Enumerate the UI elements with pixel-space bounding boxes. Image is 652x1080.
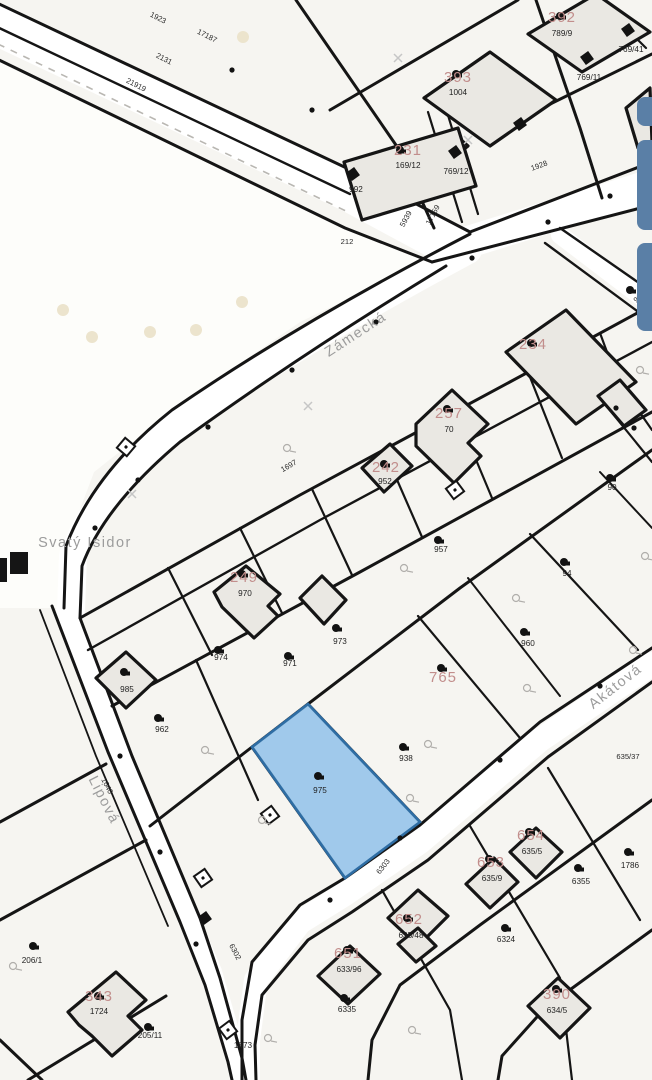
parcel-number-label: 973 (333, 637, 347, 646)
pt-symbol (289, 367, 294, 372)
grass-symbol (409, 1027, 422, 1035)
hut-symbol (261, 806, 279, 824)
pt-symbol (117, 753, 122, 758)
parcel-number-label: 635/5 (522, 847, 543, 856)
road-parcel-number-label: 2131 (155, 51, 174, 67)
building-number-label: 652 (395, 911, 423, 928)
parcel-number-label: 94 (562, 569, 572, 578)
grass-symbol (425, 741, 438, 749)
x-symbol (304, 402, 312, 410)
road-parcel-number-label: 17187 (196, 27, 219, 45)
parcel-number-label: 952 (378, 477, 392, 486)
grass-symbol (524, 685, 537, 693)
blob-symbol (399, 743, 409, 751)
building-number-label: 390 (543, 986, 571, 1003)
parcel-number-label: 635/48 (398, 931, 423, 940)
grass-symbol (630, 647, 643, 655)
fdot-symbol (237, 31, 249, 43)
building-number-label: 234 (519, 336, 547, 353)
pt-symbol (229, 67, 234, 72)
parcel-number-label: 6324 (497, 935, 516, 944)
building-number-label: 231 (394, 142, 422, 159)
parcel-number-label: 70 (444, 425, 454, 434)
pt-symbol (327, 897, 332, 902)
grass-symbol (513, 595, 526, 603)
parcel-number-label: 634/5 (547, 1006, 568, 1015)
grass-symbol (401, 565, 414, 573)
parcel-number-label: 6335 (338, 1005, 357, 1014)
road-parcel-number-label: 635/37 (616, 752, 639, 761)
pt-symbol (193, 941, 198, 946)
x-symbol (464, 136, 472, 144)
parcel-number-label: 169/12 (395, 161, 420, 170)
x-symbol (128, 490, 136, 498)
parcel-number-label: 1004 (449, 88, 468, 97)
blob-symbol (434, 536, 444, 544)
fdot-symbol (236, 296, 248, 308)
pt-symbol (497, 757, 502, 762)
blob-symbol (332, 624, 342, 632)
parcel-number-label: 974 (214, 653, 228, 662)
parcel-number-label: 205/11 (138, 1031, 163, 1040)
map-viewport: ZámeckáLipováAkátováSvatý Isidor23139339… (0, 0, 652, 1080)
grass-symbol (642, 553, 652, 561)
road-parcel-number-label: 6302 (227, 942, 243, 961)
parcel-number-label: 789/9 (552, 29, 573, 38)
grass-symbol (637, 367, 650, 375)
map-tool-button[interactable] (637, 97, 652, 126)
parcel-number-label: 1786 (621, 861, 640, 870)
parcel-number-label: 957 (434, 545, 448, 554)
x-symbol (394, 54, 402, 62)
building-number-label: 242 (372, 459, 400, 476)
blob-symbol (560, 558, 570, 566)
parcel-number-label: 1724 (90, 1007, 109, 1016)
parcel-number-label: 1873 (234, 1041, 253, 1050)
pt-symbol (135, 477, 140, 482)
cadastral-map[interactable]: ZámeckáLipováAkátováSvatý Isidor23139339… (0, 0, 652, 1080)
blob-symbol (154, 714, 164, 722)
building-number-label: 393 (444, 69, 472, 86)
pt-symbol (545, 219, 550, 224)
parcel-number-label: 962 (155, 725, 169, 734)
parcel-number-label: 985 (120, 685, 134, 694)
pt-symbol (397, 835, 402, 840)
road-parcel-number-label: 212 (341, 237, 354, 246)
map-tool-button[interactable] (637, 243, 652, 331)
pt-symbol (205, 424, 210, 429)
pt-symbol (607, 193, 612, 198)
building-number-label: 343 (85, 988, 113, 1005)
pt-symbol (157, 849, 162, 854)
building-number-label: 765 (429, 669, 457, 686)
grass-symbol (407, 795, 420, 803)
blob-symbol (29, 942, 39, 950)
parcel-number-label: 635/9 (482, 874, 503, 883)
parcel-number-label: 769/11 (577, 73, 602, 82)
parcel-number-label: 206/1 (22, 956, 43, 965)
hut-symbol (446, 481, 464, 499)
fdot-symbol (144, 326, 156, 338)
grass-symbol (10, 963, 23, 971)
parcel-number-label: 971 (283, 659, 297, 668)
pt-symbol (631, 425, 636, 430)
grass-symbol (284, 445, 297, 453)
building-number-label: 249 (230, 569, 258, 586)
pt-symbol (92, 525, 97, 530)
fdot-symbol (86, 331, 98, 343)
blob-symbol (144, 1023, 154, 1031)
road-parcel-number-label: 1697 (279, 458, 298, 474)
building-number-label: 654 (517, 827, 545, 844)
fdot-symbol (190, 324, 202, 336)
building-number-label: 392 (548, 9, 576, 26)
fdot-symbol (57, 304, 69, 316)
pt-symbol (309, 107, 314, 112)
map-tool-button[interactable] (637, 140, 652, 230)
building-number-label: 257 (435, 405, 463, 422)
blob-symbol (574, 864, 584, 872)
blob-symbol (624, 848, 634, 856)
parcel-number-label: 975 (313, 786, 327, 795)
grass-symbol (202, 747, 215, 755)
blob-symbol (520, 628, 530, 636)
building-number-label: 653 (477, 854, 505, 871)
pt-symbol (613, 405, 618, 410)
hut-symbol (194, 869, 212, 887)
parcel-number-label: 938 (399, 754, 413, 763)
parcel-number-label: 769/41 (618, 45, 643, 54)
parcel-number-label: 633/96 (336, 965, 361, 974)
parcel-number-label: 960 (521, 639, 535, 648)
building-number-label: 651 (334, 945, 362, 962)
road-parcel-number-label: 1928 (530, 159, 549, 173)
grass-symbol (265, 1035, 278, 1043)
road-parcel-number-label: 1923 (149, 10, 168, 26)
parcel-number-label: 769/12 (443, 167, 468, 176)
parcel-number-label: 970 (238, 589, 252, 598)
blob-symbol (501, 924, 511, 932)
parcel-number-label: 6355 (572, 877, 591, 886)
street-label: Svatý Isidor (38, 535, 132, 551)
parcel-number-label: 90 (607, 483, 617, 492)
parcel-number-label: 992 (349, 185, 363, 194)
pt-symbol (469, 255, 474, 260)
